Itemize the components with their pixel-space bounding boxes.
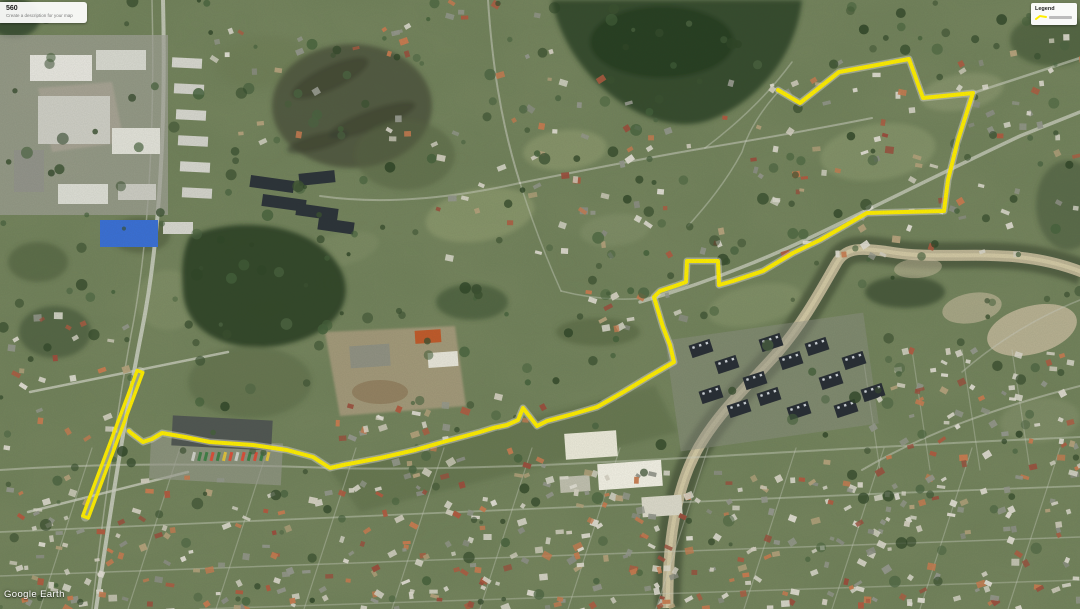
map-title: 560 [6,5,82,13]
legend-item-label [1049,16,1072,19]
google-earth-attribution: Google Earth [4,589,65,600]
legend-title: Legend [1035,6,1073,12]
satellite-imagery [0,0,1080,609]
map-title-card[interactable]: 560 Create a description for your map [0,2,87,23]
map-description-placeholder: Create a description for your map [6,13,82,19]
route-line-swatch-icon [1035,14,1047,21]
map-canvas[interactable]: 560 Create a description for your map Le… [0,0,1080,609]
legend-item[interactable] [1035,14,1073,21]
legend-card[interactable]: Legend [1031,3,1077,25]
